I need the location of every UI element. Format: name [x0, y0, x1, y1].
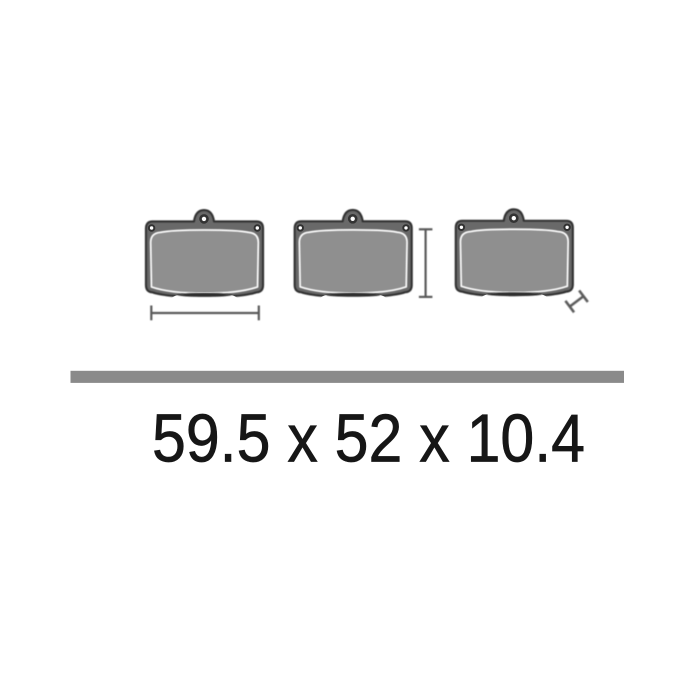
svg-text:59.5 x 52 x 10.4: 59.5 x 52 x 10.4: [152, 401, 585, 477]
